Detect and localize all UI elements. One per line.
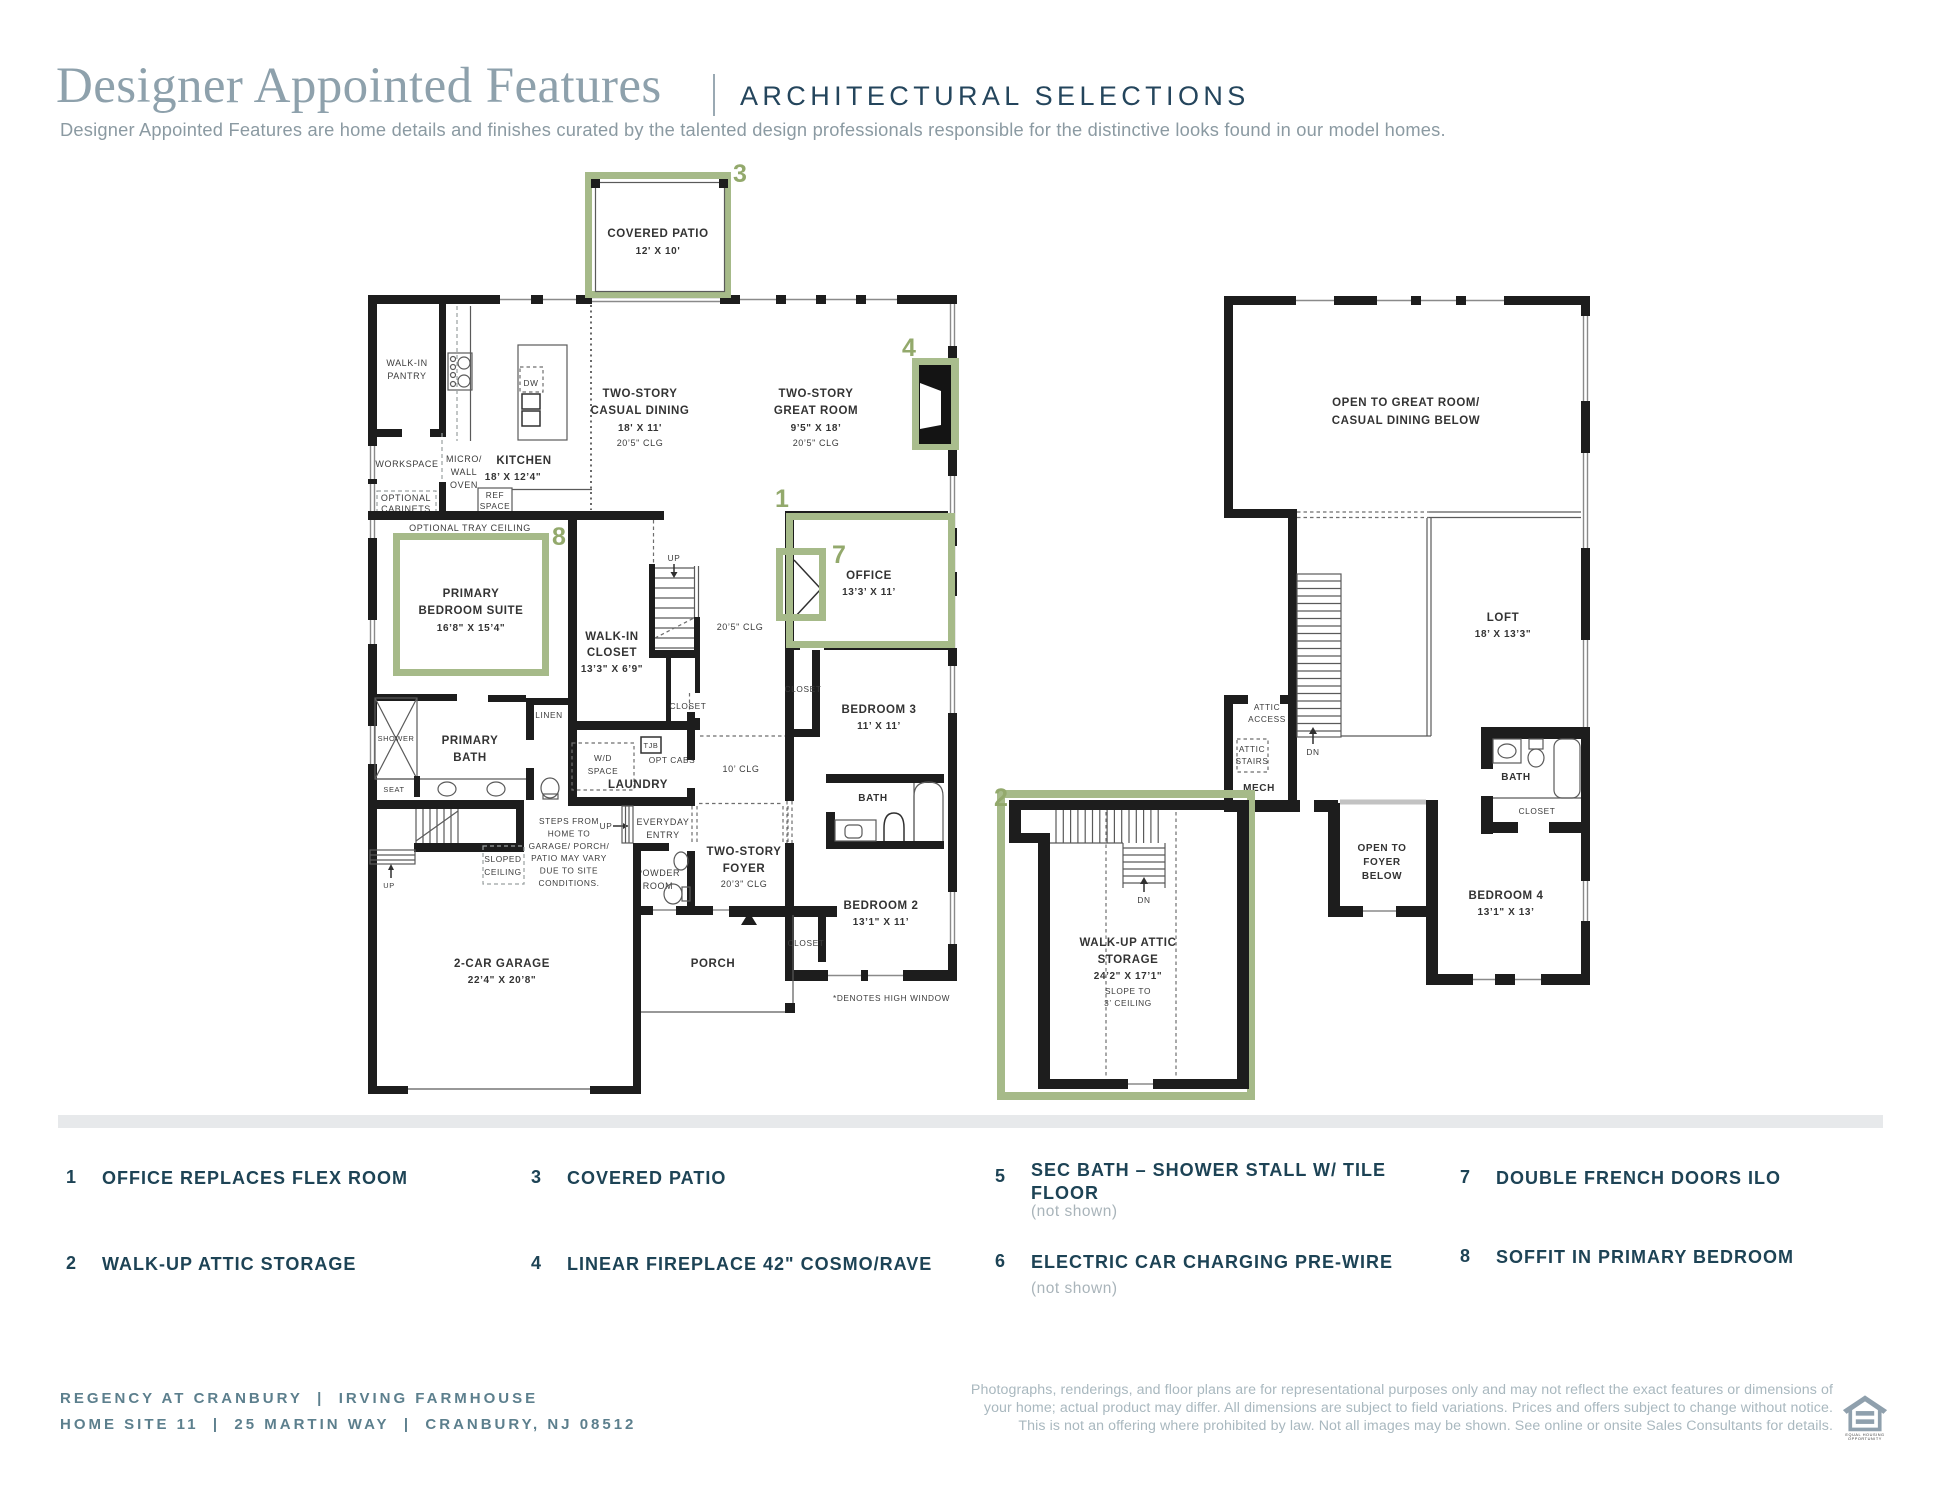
- svg-text:BATH: BATH: [1501, 772, 1530, 783]
- svg-text:2: 2: [994, 784, 1008, 812]
- svg-text:CONDITIONS.: CONDITIONS.: [539, 878, 600, 888]
- svg-text:TWO-STORY: TWO-STORY: [778, 388, 853, 400]
- svg-text:DUE TO SITE: DUE TO SITE: [540, 866, 598, 876]
- svg-text:CASUAL DINING BELOW: CASUAL DINING BELOW: [1332, 415, 1481, 427]
- svg-text:KITCHEN: KITCHEN: [496, 455, 551, 467]
- svg-text:COVERED PATIO: COVERED PATIO: [607, 228, 708, 240]
- svg-text:TWO-STORY: TWO-STORY: [602, 388, 677, 400]
- svg-text:18’ X 12’4": 18’ X 12’4": [485, 472, 541, 483]
- svg-text:STAIRS: STAIRS: [1236, 756, 1269, 766]
- svg-text:PORCH: PORCH: [691, 958, 736, 970]
- svg-text:REF: REF: [486, 490, 504, 500]
- svg-text:FOYER: FOYER: [723, 863, 766, 875]
- svg-text:12' X 10': 12' X 10': [636, 246, 681, 257]
- svg-text:ACCESS: ACCESS: [1248, 714, 1286, 724]
- svg-text:TWO-STORY: TWO-STORY: [706, 846, 781, 858]
- svg-text:FOYER: FOYER: [1363, 857, 1401, 868]
- svg-text:3’ CEILING: 3’ CEILING: [1104, 998, 1152, 1008]
- svg-text:OPEN TO: OPEN TO: [1357, 843, 1406, 854]
- svg-text:11’ X 11’: 11’ X 11’: [857, 721, 901, 732]
- svg-text:BEDROOM SUITE: BEDROOM SUITE: [419, 605, 524, 617]
- svg-text:STEPS FROM: STEPS FROM: [539, 816, 599, 826]
- svg-text:CASUAL DINING: CASUAL DINING: [591, 405, 690, 417]
- svg-text:*DENOTES HIGH WINDOW: *DENOTES HIGH WINDOW: [833, 993, 950, 1003]
- svg-text:LAUNDRY: LAUNDRY: [608, 779, 668, 791]
- svg-text:BEDROOM 3: BEDROOM 3: [841, 704, 916, 716]
- svg-text:18' X 11': 18' X 11': [618, 423, 662, 434]
- svg-text:7: 7: [832, 541, 846, 569]
- svg-text:PRIMARY: PRIMARY: [442, 735, 499, 747]
- svg-text:PANTRY: PANTRY: [387, 371, 426, 381]
- svg-text:13’1" X 13’: 13’1" X 13’: [1478, 907, 1535, 918]
- svg-text:13’3’ X 11’: 13’3’ X 11’: [842, 587, 896, 598]
- svg-text:TJB: TJB: [644, 741, 659, 750]
- svg-text:BELOW: BELOW: [1362, 871, 1402, 882]
- svg-text:GARAGE/ PORCH/: GARAGE/ PORCH/: [529, 841, 610, 851]
- svg-text:UP: UP: [600, 821, 613, 831]
- svg-text:CLOSET: CLOSET: [785, 684, 822, 694]
- svg-text:POWDER: POWDER: [636, 868, 680, 878]
- svg-text:10’ CLG: 10’ CLG: [723, 764, 760, 774]
- svg-text:DN: DN: [1137, 895, 1150, 905]
- svg-text:UP: UP: [383, 881, 394, 890]
- svg-text:ENTRY: ENTRY: [646, 830, 679, 840]
- svg-text:BATH: BATH: [858, 793, 887, 804]
- svg-text:EVERYDAY: EVERYDAY: [637, 817, 690, 827]
- svg-text:LINEN: LINEN: [535, 710, 562, 720]
- svg-text:SLOPED: SLOPED: [484, 854, 521, 864]
- svg-text:ATTIC: ATTIC: [1254, 702, 1280, 712]
- svg-text:UP: UP: [668, 553, 681, 563]
- svg-text:PATIO MAY VARY: PATIO MAY VARY: [531, 853, 607, 863]
- svg-text:SHOWER: SHOWER: [378, 734, 415, 743]
- svg-text:OPEN TO GREAT ROOM/: OPEN TO GREAT ROOM/: [1332, 397, 1480, 409]
- svg-text:SPACE: SPACE: [588, 766, 619, 776]
- svg-text:OPTIONAL TRAY CEILING: OPTIONAL TRAY CEILING: [409, 523, 531, 533]
- svg-text:20’5" CLG: 20’5" CLG: [617, 438, 664, 448]
- svg-text:BATH: BATH: [453, 752, 487, 764]
- svg-text:22’4" X 20’8": 22’4" X 20’8": [468, 975, 536, 986]
- svg-text:3: 3: [733, 160, 747, 188]
- svg-text:WALK-IN: WALK-IN: [585, 631, 638, 643]
- svg-text:OFFICE: OFFICE: [846, 570, 892, 582]
- svg-text:1: 1: [775, 485, 789, 513]
- svg-text:16’8" X 15’4": 16’8" X 15’4": [437, 623, 505, 634]
- svg-text:BEDROOM 2: BEDROOM 2: [843, 900, 918, 912]
- svg-text:CEILING: CEILING: [484, 867, 521, 877]
- svg-text:PRIMARY: PRIMARY: [443, 588, 500, 600]
- svg-text:13’1" X 11’: 13’1" X 11’: [853, 917, 909, 928]
- svg-text:ATTIC: ATTIC: [1239, 744, 1265, 754]
- svg-text:CLOSET: CLOSET: [587, 647, 637, 659]
- svg-text:OVEN: OVEN: [450, 480, 478, 490]
- svg-text:W/D: W/D: [594, 753, 612, 763]
- svg-text:GREAT ROOM: GREAT ROOM: [774, 405, 858, 417]
- svg-text:DN: DN: [1306, 747, 1319, 757]
- svg-text:18’ X 13’3": 18’ X 13’3": [1475, 629, 1531, 640]
- svg-text:WORKSPACE: WORKSPACE: [375, 459, 438, 469]
- svg-text:13’3" X 6’9": 13’3" X 6’9": [581, 664, 643, 675]
- svg-text:4: 4: [902, 334, 916, 362]
- svg-text:WALK-IN: WALK-IN: [386, 358, 427, 368]
- svg-text:20’5" CLG: 20’5" CLG: [793, 438, 840, 448]
- svg-text:ROOM: ROOM: [643, 881, 673, 891]
- svg-text:WALK-UP ATTIC: WALK-UP ATTIC: [1079, 937, 1176, 949]
- svg-text:9’5" X 18’: 9’5" X 18’: [791, 423, 842, 434]
- svg-text:CLOSET: CLOSET: [670, 701, 707, 711]
- svg-text:HOME TO: HOME TO: [548, 828, 591, 838]
- svg-text:WALL: WALL: [451, 467, 478, 477]
- svg-text:STORAGE: STORAGE: [1098, 954, 1159, 966]
- svg-text:SLOPE TO: SLOPE TO: [1105, 986, 1151, 996]
- svg-text:MICRO/: MICRO/: [446, 454, 482, 464]
- svg-text:20’5" CLG: 20’5" CLG: [717, 622, 764, 632]
- svg-text:8: 8: [552, 523, 566, 551]
- svg-text:20’3" CLG: 20’3" CLG: [721, 879, 768, 889]
- svg-text:DW: DW: [523, 378, 538, 388]
- svg-text:OPTIONAL: OPTIONAL: [381, 493, 431, 503]
- svg-text:LOFT: LOFT: [1487, 612, 1519, 624]
- svg-text:SPACE: SPACE: [480, 501, 511, 511]
- svg-text:2-CAR GARAGE: 2-CAR GARAGE: [454, 958, 550, 970]
- svg-text:CLOSET: CLOSET: [1519, 806, 1556, 816]
- svg-text:24’2" X 17’1": 24’2" X 17’1": [1094, 971, 1162, 982]
- svg-text:SEAT: SEAT: [383, 785, 404, 794]
- svg-text:BEDROOM 4: BEDROOM 4: [1468, 890, 1543, 902]
